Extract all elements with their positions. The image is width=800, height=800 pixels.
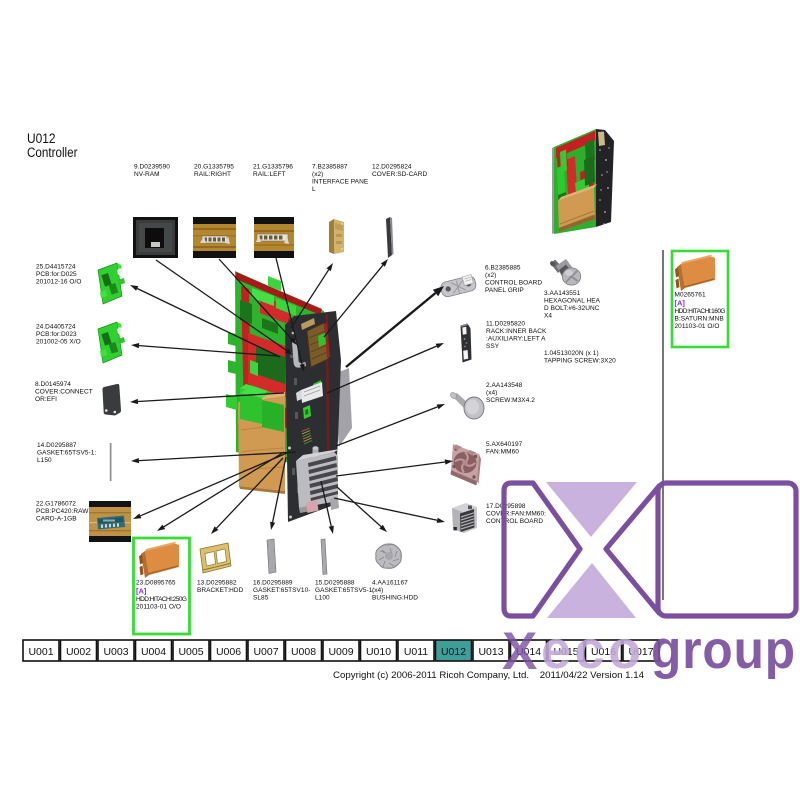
- svg-text:U009: U009: [328, 646, 353, 658]
- svg-text:CONTROL BOARD: CONTROL BOARD: [485, 280, 542, 287]
- svg-text:(x2): (x2): [485, 272, 496, 279]
- svg-text:RACK:INNER BACK: RACK:INNER BACK: [486, 328, 547, 335]
- svg-text:15.D0295888: 15.D0295888: [315, 580, 355, 587]
- svg-text:NV-RAM: NV-RAM: [134, 171, 160, 178]
- svg-text:CONTROL BOARD: CONTROL BOARD: [486, 518, 543, 525]
- svg-text:(x2): (x2): [312, 171, 323, 178]
- svg-text:25.D4415724: 25.D4415724: [36, 264, 76, 271]
- svg-text:21.G1335796: 21.G1335796: [253, 164, 293, 171]
- svg-text:U007: U007: [253, 646, 278, 658]
- svg-text:COVER:FAN:MM60:: COVER:FAN:MM60:: [486, 511, 546, 518]
- svg-text:PANEL GRIP: PANEL GRIP: [485, 287, 524, 294]
- svg-text:group: group: [651, 620, 796, 680]
- svg-text:RAIL:LEFT: RAIL:LEFT: [253, 171, 286, 178]
- svg-text:U011: U011: [404, 646, 428, 658]
- svg-text:12.D0295824: 12.D0295824: [372, 164, 412, 171]
- svg-text:201103-01 O/O: 201103-01 O/O: [136, 604, 181, 611]
- svg-text:GASKET:65TSV10-: GASKET:65TSV10-: [253, 587, 310, 594]
- svg-text:HDD:HITACHI:250G: HDD:HITACHI:250G: [136, 596, 187, 603]
- svg-text:HDD:HITACHI:160G: HDD:HITACHI:160G: [675, 308, 726, 315]
- svg-text:RAIL:RIGHT: RAIL:RIGHT: [194, 171, 231, 178]
- svg-text:COVER:SD-CARD: COVER:SD-CARD: [372, 171, 427, 178]
- svg-text:13.D0295882: 13.D0295882: [197, 580, 237, 587]
- svg-text:Controller: Controller: [27, 145, 78, 160]
- svg-text:GASKET:65TSV5-1:: GASKET:65TSV5-1:: [37, 450, 96, 457]
- svg-text:SCREW:M3X4.2: SCREW:M3X4.2: [486, 397, 535, 404]
- svg-text:D BOLT:#6-32UNC: D BOLT:#6-32UNC: [544, 305, 600, 312]
- svg-text:U013: U013: [478, 646, 503, 658]
- svg-text:PCB:for:D023: PCB:for:D023: [36, 331, 77, 338]
- svg-text:8.D0145974: 8.D0145974: [35, 381, 71, 388]
- svg-text:X4: X4: [544, 313, 552, 320]
- svg-text:L150: L150: [37, 457, 52, 464]
- svg-text:HEXAGONAL HEA: HEXAGONAL HEA: [544, 298, 601, 305]
- svg-text:BUSHING:HDD: BUSHING:HDD: [372, 595, 418, 602]
- svg-text:[A]: [A]: [136, 587, 147, 596]
- svg-text:(x4): (x4): [486, 390, 497, 397]
- svg-text:U003: U003: [103, 646, 128, 658]
- svg-text:24.D4405724: 24.D4405724: [36, 324, 76, 331]
- svg-text:201012-16 O/O: 201012-16 O/O: [36, 279, 81, 286]
- svg-text:eco: eco: [541, 620, 645, 680]
- svg-text:23.D0895765: 23.D0895765: [136, 580, 176, 587]
- svg-text:INTERFACE PANE: INTERFACE PANE: [312, 179, 369, 186]
- svg-text:(x4): (x4): [372, 587, 383, 594]
- svg-text:201002-05 X/O: 201002-05 X/O: [36, 339, 81, 346]
- svg-text:11.D0295820: 11.D0295820: [486, 321, 525, 328]
- svg-text:COVER:CONNECT: COVER:CONNECT: [35, 389, 93, 396]
- svg-text:3.AA143551: 3.AA143551: [544, 290, 581, 297]
- svg-text:GASKET:65TSV5-1:: GASKET:65TSV5-1:: [315, 587, 374, 594]
- svg-text:X: X: [502, 622, 537, 681]
- svg-text:M0265761: M0265761: [675, 292, 706, 299]
- svg-text::AUXILIARY:LEFT A: :AUXILIARY:LEFT A: [486, 336, 546, 343]
- svg-text:6.B2385885: 6.B2385885: [485, 265, 521, 272]
- svg-text:22.G1786072: 22.G1786072: [36, 501, 76, 508]
- svg-text:B:SATURN:MNB: B:SATURN:MNB: [675, 316, 724, 323]
- svg-text:14.D0295887: 14.D0295887: [37, 442, 77, 449]
- svg-text:201103-01 O/O: 201103-01 O/O: [675, 323, 720, 330]
- svg-text:U005: U005: [178, 646, 203, 658]
- svg-text:SSY: SSY: [486, 343, 500, 350]
- svg-text:PCB:for:D025: PCB:for:D025: [36, 271, 77, 278]
- svg-text:L: L: [312, 186, 316, 193]
- svg-text:U012: U012: [27, 131, 56, 146]
- svg-text:1.04513020N (x 1): 1.04513020N (x 1): [544, 350, 599, 357]
- svg-text:U006: U006: [216, 646, 241, 658]
- svg-text:16.D0295889: 16.D0295889: [253, 580, 293, 587]
- svg-text:BRACKET:HDD: BRACKET:HDD: [197, 587, 244, 594]
- svg-text:9.D0239590: 9.D0239590: [134, 164, 170, 171]
- svg-text:FAN:MM60: FAN:MM60: [486, 449, 519, 456]
- svg-text:CARD-A-1GB: CARD-A-1GB: [36, 516, 77, 523]
- svg-text:U001: U001: [28, 646, 53, 658]
- svg-text:2.AA143548: 2.AA143548: [486, 382, 523, 389]
- svg-text:7.B2385887: 7.B2385887: [312, 164, 348, 171]
- svg-text:U004: U004: [141, 646, 166, 658]
- svg-text:L100: L100: [315, 595, 330, 602]
- svg-text:4.AA161167: 4.AA161167: [372, 580, 408, 587]
- svg-text:U002: U002: [66, 646, 91, 658]
- svg-text:[A]: [A]: [675, 299, 686, 308]
- svg-text:PCB:PC420:RAW: PCB:PC420:RAW: [36, 508, 89, 515]
- svg-text:SL85: SL85: [253, 595, 269, 602]
- svg-text:20.G1335795: 20.G1335795: [194, 164, 234, 171]
- svg-text:TAPPING SCREW:3X20: TAPPING SCREW:3X20: [544, 358, 616, 365]
- svg-text:U010: U010: [366, 646, 391, 658]
- svg-text:U012: U012: [441, 646, 466, 658]
- svg-text:U008: U008: [291, 646, 316, 658]
- svg-text:OR:EFI: OR:EFI: [35, 396, 57, 403]
- svg-text:5.AX640197: 5.AX640197: [486, 441, 523, 448]
